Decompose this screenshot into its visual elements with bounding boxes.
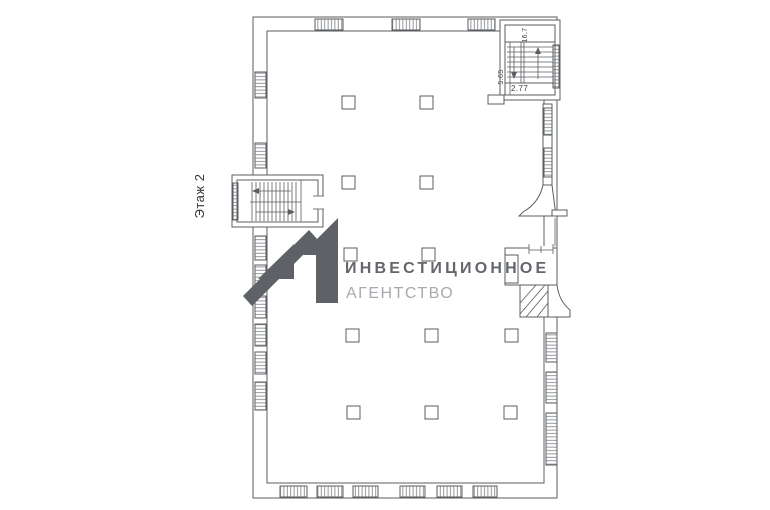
window-segment xyxy=(233,183,238,220)
window-segment xyxy=(255,236,266,260)
splayed-opening-lip xyxy=(552,210,567,216)
watermark-subtitle: АГЕНТСТВО xyxy=(346,286,454,302)
window-segment xyxy=(546,333,557,362)
column xyxy=(425,329,438,342)
window-segment xyxy=(353,486,378,497)
column xyxy=(342,176,355,189)
window-segment xyxy=(255,352,266,374)
window-segment xyxy=(392,19,420,30)
window-segment xyxy=(553,45,559,88)
window-segment xyxy=(255,324,266,346)
column xyxy=(420,176,433,189)
window-segment xyxy=(544,148,552,177)
window-segment xyxy=(546,372,557,403)
top-wall-windows xyxy=(315,19,495,30)
column xyxy=(425,406,438,419)
window-segment xyxy=(473,486,497,497)
window-segment xyxy=(317,486,343,497)
window-segment xyxy=(468,19,495,30)
stair-dimension-width: 2.77 xyxy=(511,85,528,93)
window-segment xyxy=(400,486,425,497)
window-segment xyxy=(315,19,343,30)
column xyxy=(504,406,517,419)
columns xyxy=(342,96,518,419)
window-segment xyxy=(255,72,266,98)
window-segment xyxy=(437,486,462,497)
floor-plan-drawing xyxy=(0,0,770,510)
stair-dimension-depth: 5.65 xyxy=(498,65,508,89)
column xyxy=(347,406,360,419)
column xyxy=(346,329,359,342)
window-segment xyxy=(546,413,557,465)
window-segment xyxy=(255,382,266,410)
watermark-title: ИНВЕСТИЦИОННОЕ xyxy=(345,261,549,277)
right-wall-windows xyxy=(546,333,557,465)
window-segment xyxy=(255,143,266,168)
splayed-opening-upper xyxy=(519,185,556,216)
window-segment xyxy=(280,486,307,497)
staircase-mid-right xyxy=(520,285,570,317)
splayed-opening-lower xyxy=(548,285,570,317)
column xyxy=(342,96,355,109)
column xyxy=(420,96,433,109)
floorplan-image: Этаж 2 2.77 5.65 16.7 ИНВЕСТИЦИОННОЕ АГЕ… xyxy=(0,0,770,510)
floor-label: Этаж 2 xyxy=(193,168,211,224)
agency-logo-mark xyxy=(243,218,338,306)
right-wall-upper xyxy=(519,104,567,246)
logo-one-bar xyxy=(316,218,338,303)
stair-dimension-area: 16.7 xyxy=(522,23,532,47)
column xyxy=(505,329,518,342)
left-wall-windows xyxy=(255,72,266,410)
staircase-left xyxy=(232,175,325,227)
wall-notch xyxy=(488,95,504,104)
bottom-wall-windows xyxy=(280,486,497,497)
window-segment xyxy=(544,108,552,135)
